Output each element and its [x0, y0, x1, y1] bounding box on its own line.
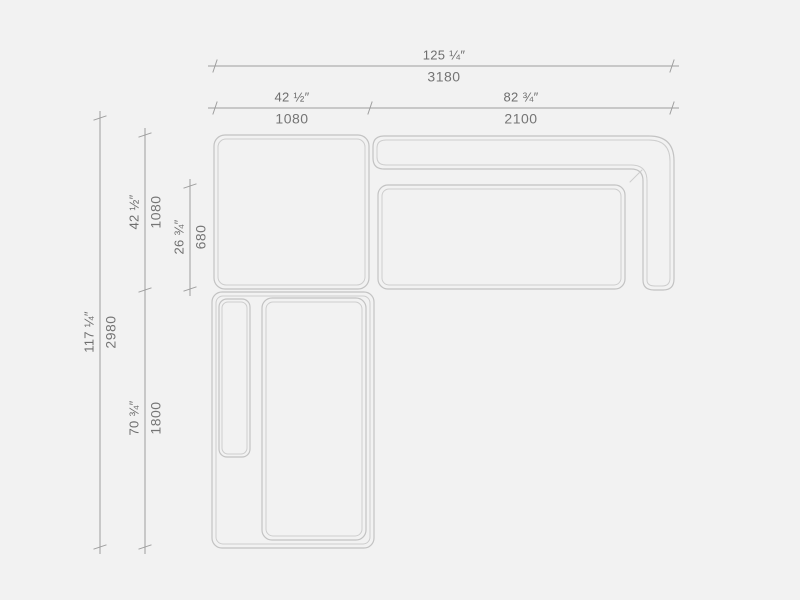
corner-module-outline: [214, 135, 369, 289]
sofa-module-outline: [373, 136, 674, 290]
drawing-linework: [0, 0, 800, 600]
technical-drawing-canvas: 125 ¼″ 3180 42 ½″ 1080 82 ¾″ 2100 117 ¼″…: [0, 0, 800, 600]
dim-line-seat-depth: [184, 179, 197, 296]
chaise-seat-cushion-outline: [262, 298, 366, 540]
dim-line-module-widths: [208, 102, 679, 115]
dim-line-overall-width: [208, 60, 679, 73]
sofa-outlines: [212, 135, 674, 548]
chaise-module-outline: [212, 292, 374, 548]
dimension-lines: [94, 60, 680, 555]
backrest-armrest-miter-line: [630, 170, 642, 182]
dim-line-left-depths: [139, 128, 152, 554]
chaise-backrest-cushion-outline: [219, 299, 250, 457]
dim-line-overall-depth: [94, 111, 107, 554]
sofa-seat-cushion-outline: [378, 185, 625, 289]
